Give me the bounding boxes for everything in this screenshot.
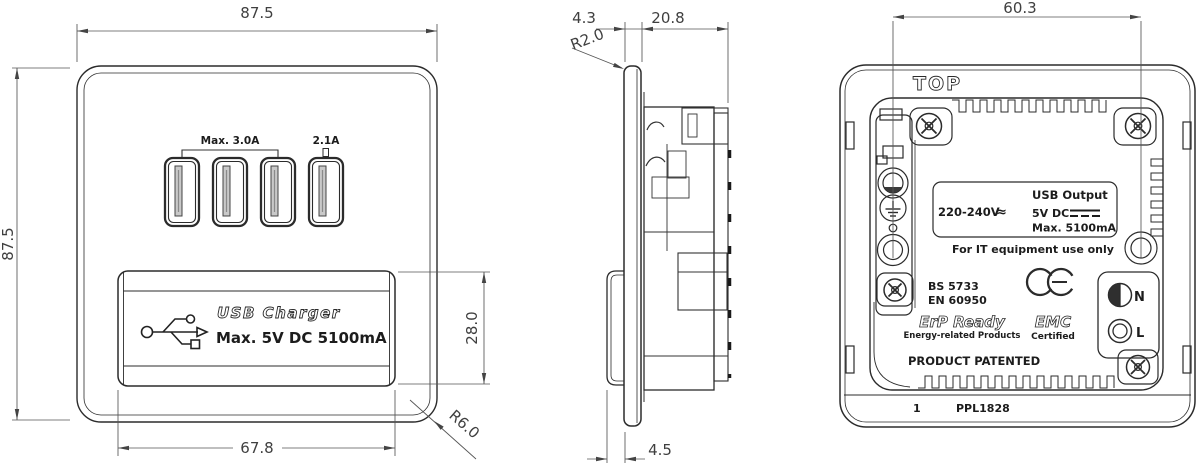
port4-callout-tick — [323, 149, 329, 157]
side-label-bulge — [607, 271, 624, 385]
footer-sheet-number: 1 — [913, 402, 921, 415]
usb-group-rating-label: Max. 3.0A — [201, 135, 261, 147]
edge-radius-callout: R2.0 — [568, 25, 606, 54]
front-label-rating: Max. 5V DC 5100mA — [216, 329, 387, 347]
serration-top — [952, 100, 1106, 112]
erp-subtitle: Energy-related Products — [903, 331, 1020, 341]
dim-fixing-centres: 60.3 — [1003, 0, 1036, 17]
live-terminal — [1109, 320, 1132, 343]
footer-part-code: PPL1828 — [956, 402, 1010, 415]
usb-port-2 — [213, 158, 247, 226]
terminal-neutral-label: N — [1134, 290, 1145, 305]
side-faceplate — [624, 66, 641, 426]
usb-port-3 — [261, 158, 295, 226]
usb-port4-rating-label: 2.1A — [313, 135, 341, 147]
neutral-terminal — [1109, 284, 1132, 308]
standard-bs: BS 5733 — [928, 280, 979, 293]
ac-symbol: ≈ — [996, 205, 1007, 220]
faceplate-outline — [77, 66, 437, 422]
technical-drawing-usb-charger-plate: Max. 3.0A 2.1A USB Charger Max. 5V DC 51… — [0, 0, 1200, 466]
terminal-block: N L — [1098, 272, 1159, 358]
dim-label-width: 67.8 — [240, 439, 273, 457]
screw-top-left — [910, 108, 952, 145]
emc-title: EMC — [1035, 313, 1071, 331]
input-voltage: 220-240V — [938, 205, 1000, 219]
shared-ports-bracket — [182, 150, 278, 157]
dim-label-height: 28.0 — [463, 311, 481, 344]
usb-trident-icon — [142, 315, 208, 349]
side-view — [607, 66, 730, 426]
side-body-back — [714, 113, 728, 381]
mounting-slot — [846, 122, 854, 149]
standard-en: EN 60950 — [928, 294, 987, 307]
side-view-dimensions: 4.3 20.8 R2.0 4.5 — [568, 9, 728, 463]
output-current: Max. 5100mA — [1032, 222, 1117, 235]
terminal-live-label: L — [1136, 326, 1144, 341]
orientation-label: TOP — [913, 73, 962, 95]
usb-port-1 — [165, 158, 199, 226]
serration-right — [1151, 152, 1163, 236]
serration-bottom — [918, 376, 1114, 388]
ce-mark-icon — [1027, 269, 1074, 295]
front-label-title: USB Charger — [217, 304, 341, 322]
screw-top-right — [1114, 108, 1156, 145]
dc-symbol-icon — [1070, 211, 1100, 217]
front-view: Max. 3.0A 2.1A USB Charger Max. 5V DC 51… — [77, 66, 437, 422]
usb-port-4 — [309, 158, 343, 226]
output-voltage: 5V DC — [1032, 207, 1069, 220]
side-body — [644, 107, 714, 390]
dim-body-depth: 20.8 — [651, 9, 684, 27]
rating-plate: 220-240V ≈ USB Output 5V DC Max. 5100mA — [933, 182, 1117, 237]
dim-label-protrusion: 4.5 — [648, 441, 672, 459]
left-terminal-housing — [876, 109, 912, 315]
emc-subtitle: Certified — [1031, 332, 1075, 342]
screw-bottom-right — [1118, 350, 1158, 384]
side-internal-details — [644, 108, 728, 356]
patent-note: PRODUCT PATENTED — [908, 354, 1040, 368]
front-view-dimensions: 87.5 87.5 67.8 28.0 R6.0 — [0, 4, 490, 459]
erp-title: ErP Ready — [919, 313, 1006, 331]
dim-front-height: 87.5 — [0, 227, 17, 260]
dim-faceplate-thickness: 4.3 — [572, 9, 596, 27]
screw-bottom-left — [877, 273, 913, 306]
output-title: USB Output — [1032, 188, 1108, 202]
mounting-slot — [846, 346, 854, 373]
faceplate-inner-outline — [84, 73, 430, 415]
drawing-sheet: Max. 3.0A 2.1A USB Charger Max. 5V DC 51… — [0, 0, 1200, 466]
dim-front-width: 87.5 — [240, 4, 273, 22]
it-note: For IT equipment use only — [952, 243, 1114, 256]
